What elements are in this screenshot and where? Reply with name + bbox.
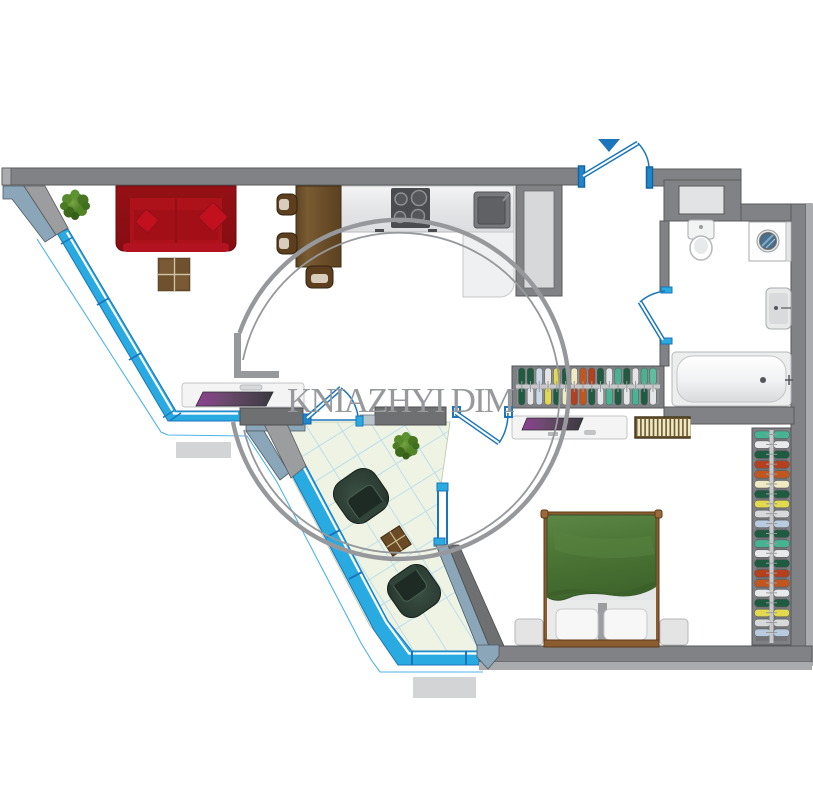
svg-text:KNIAZHYI DIM: KNIAZHYI DIM bbox=[287, 381, 515, 420]
